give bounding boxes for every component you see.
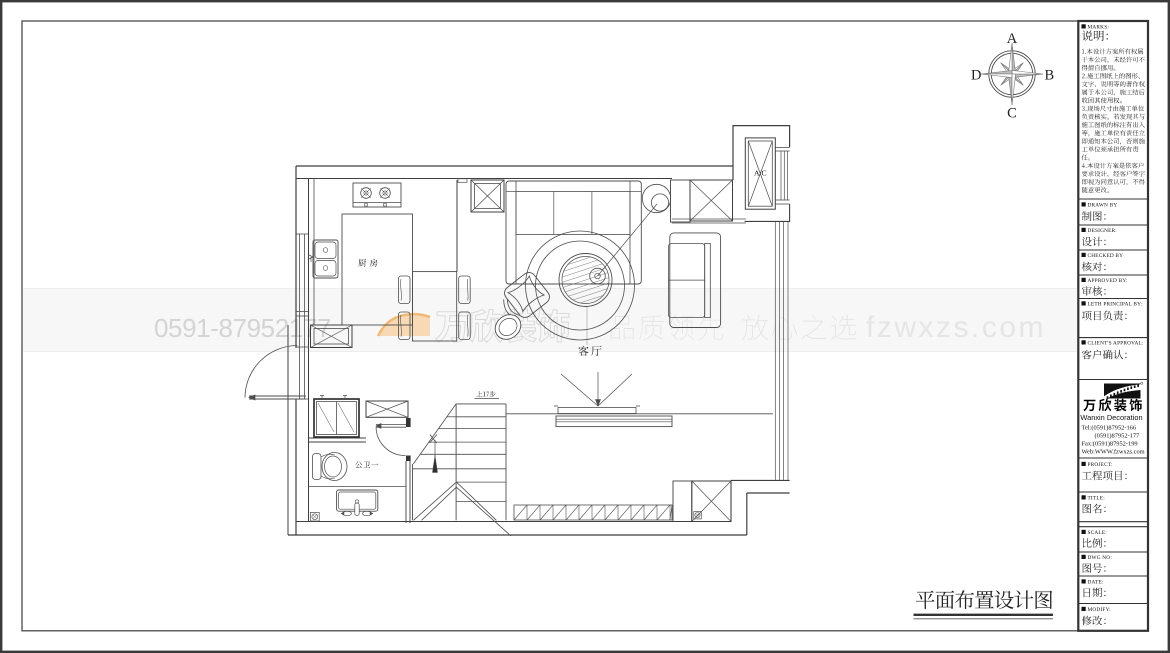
svg-text:(0591)87952-177: (0591)87952-177 (1095, 433, 1141, 440)
svg-text:APPROVED BY:: APPROVED BY: (1088, 278, 1128, 284)
svg-text:CLIENT'S APPROVAL:: CLIENT'S APPROVAL: (1088, 341, 1144, 347)
svg-text:DWG NO:: DWG NO: (1088, 555, 1113, 561)
svg-text:LETH PRINCIPAL BY:: LETH PRINCIPAL BY: (1088, 302, 1143, 308)
svg-text:D: D (971, 68, 981, 84)
svg-text:Wanxin Decoration: Wanxin Decoration (1080, 413, 1142, 422)
svg-text:B: B (1045, 68, 1055, 84)
svg-text:Fax:(0591)87952-199: Fax:(0591)87952-199 (1082, 441, 1138, 448)
svg-text:MODIFY:: MODIFY: (1088, 607, 1112, 613)
svg-text:A: A (1007, 31, 1018, 47)
svg-text:C: C (1007, 106, 1017, 122)
svg-text:Web:WWW.fzwxzs.com: Web:WWW.fzwxzs.com (1082, 449, 1145, 456)
svg-text:CHECKED BY: CHECKED BY (1088, 253, 1124, 259)
svg-text:A/C: A/C (754, 169, 767, 178)
svg-text:fzwxzs.com: fzwxzs.com (866, 311, 1046, 344)
svg-text:MARKS:: MARKS: (1088, 25, 1110, 31)
svg-text:Tel:(0591)87952-166: Tel:(0591)87952-166 (1082, 425, 1137, 432)
svg-text:TITLE:: TITLE: (1088, 496, 1106, 502)
svg-text:SCALE:: SCALE: (1088, 530, 1108, 536)
svg-text:DRAWN BY: DRAWN BY (1088, 203, 1118, 209)
svg-text:DESIGNER:: DESIGNER: (1088, 228, 1118, 234)
svg-text:DATE:: DATE: (1088, 580, 1104, 586)
svg-text:PROJECT:: PROJECT: (1088, 462, 1114, 468)
